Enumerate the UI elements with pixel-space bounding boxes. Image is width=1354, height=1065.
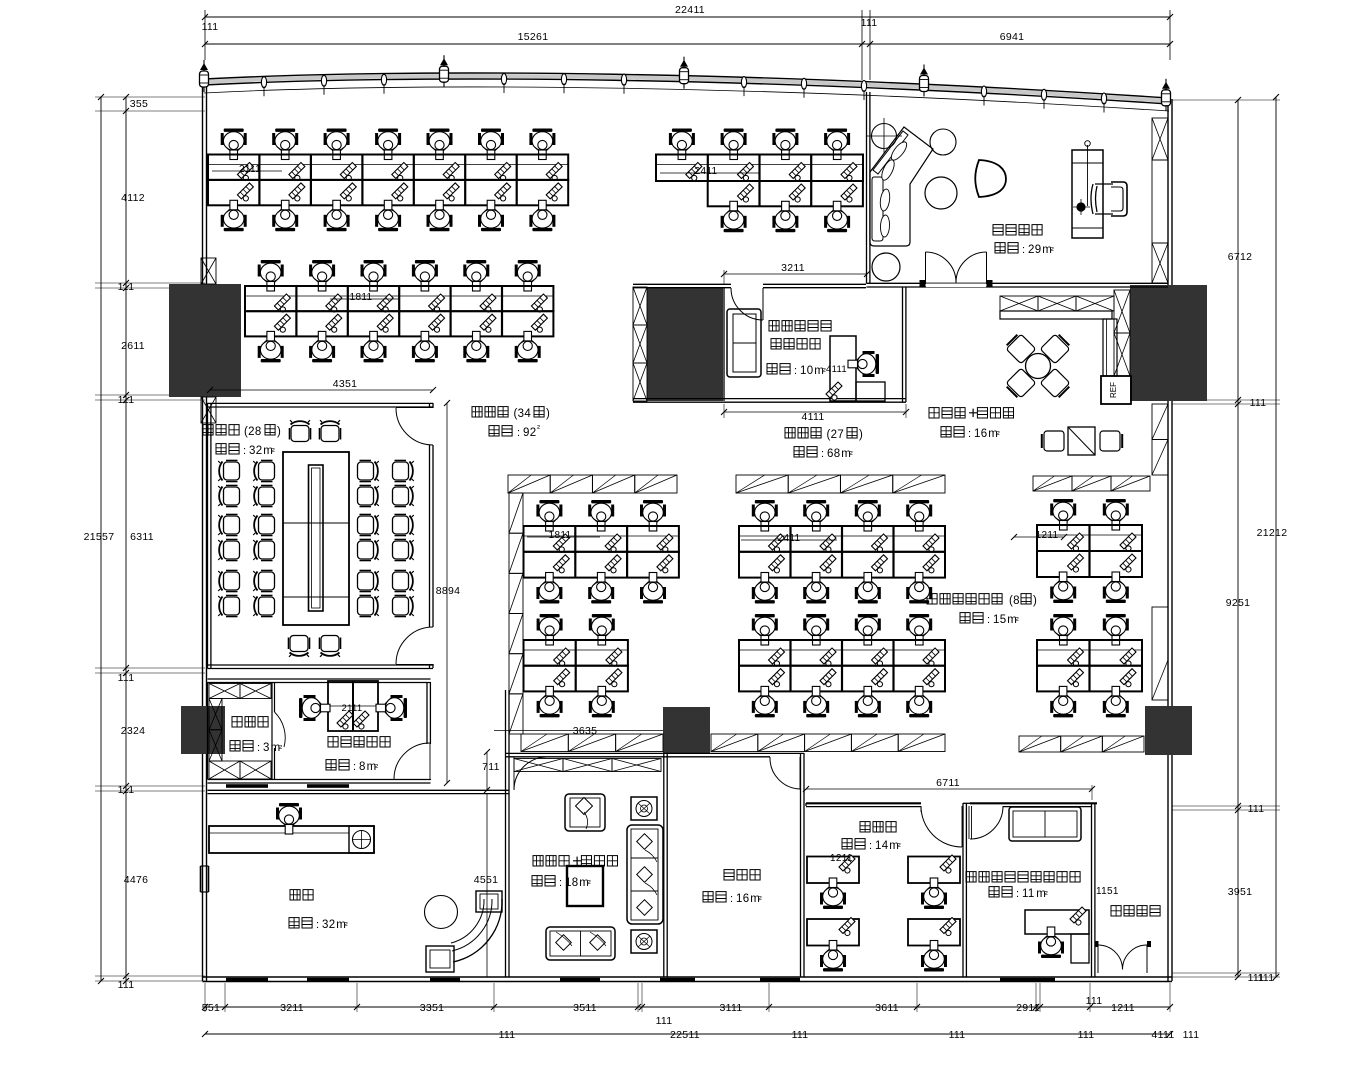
svg-text:²: ²	[1045, 889, 1048, 899]
svg-text:2324: 2324	[121, 725, 146, 737]
svg-text:111: 111	[118, 281, 135, 293]
svg-text::: :	[869, 840, 872, 852]
svg-text::: :	[1022, 244, 1025, 256]
svg-text:4112: 4112	[121, 192, 145, 204]
svg-text:111: 111	[949, 1029, 966, 1041]
svg-text:16: 16	[736, 893, 749, 905]
svg-text:11: 11	[1022, 888, 1035, 900]
svg-text:²: ²	[1051, 245, 1054, 255]
svg-text:²: ²	[850, 449, 853, 459]
svg-text:3211: 3211	[781, 262, 805, 274]
svg-text::: :	[257, 742, 260, 754]
svg-text:3951: 3951	[1228, 886, 1253, 898]
svg-text:22411: 22411	[675, 4, 705, 16]
svg-text:1811: 1811	[549, 530, 572, 541]
svg-text:3511: 3511	[573, 1002, 597, 1014]
svg-text:): )	[859, 429, 863, 441]
svg-text:²: ²	[588, 878, 591, 888]
svg-text:551: 551	[202, 1002, 220, 1014]
svg-text::: :	[987, 614, 990, 626]
svg-text:1151: 1151	[1096, 886, 1119, 897]
svg-text:3211: 3211	[280, 1002, 304, 1014]
svg-text:6941: 6941	[1000, 31, 1025, 43]
svg-text:6712: 6712	[1228, 251, 1253, 263]
svg-text::: :	[517, 427, 520, 439]
svg-text:16: 16	[974, 428, 987, 440]
svg-text:111: 111	[499, 1029, 516, 1041]
svg-text:18: 18	[565, 877, 578, 889]
svg-text:4351: 4351	[333, 378, 358, 390]
svg-text:²: ²	[272, 446, 275, 456]
svg-text:3611: 3611	[875, 1002, 899, 1014]
svg-text:14: 14	[875, 840, 889, 852]
svg-text:²: ²	[997, 429, 1000, 439]
svg-text:3351: 3351	[420, 1002, 445, 1014]
svg-text:2111: 2111	[342, 703, 363, 714]
svg-text::: :	[821, 448, 824, 460]
svg-text:21557: 21557	[84, 531, 115, 543]
svg-text:68: 68	[827, 448, 840, 460]
svg-text:2111: 2111	[239, 164, 261, 175]
svg-text:²: ²	[1016, 615, 1019, 625]
svg-text:2411: 2411	[778, 533, 801, 544]
svg-text:111: 111	[1183, 1029, 1200, 1041]
svg-text:(34: (34	[514, 408, 532, 420]
svg-text:²: ²	[537, 423, 540, 433]
svg-text:2611: 2611	[121, 340, 145, 352]
svg-text:): )	[546, 408, 550, 420]
svg-text:(27: (27	[827, 429, 845, 441]
svg-text::: :	[968, 428, 971, 440]
svg-text:111: 111	[861, 17, 878, 29]
svg-text::: :	[1016, 888, 1019, 900]
svg-text:4111: 4111	[1152, 1029, 1175, 1041]
svg-text:1211: 1211	[830, 853, 853, 864]
svg-text:8894: 8894	[436, 585, 461, 597]
svg-text:²: ²	[759, 894, 762, 904]
svg-text:): )	[1033, 595, 1037, 607]
svg-text:111: 111	[118, 672, 135, 684]
svg-text:111: 111	[118, 979, 135, 991]
svg-text:4476: 4476	[124, 874, 149, 886]
svg-text:3: 3	[263, 742, 270, 754]
svg-text:111: 111	[1086, 995, 1103, 1007]
svg-text:4111: 4111	[826, 364, 847, 375]
svg-text:111: 111	[1078, 1029, 1095, 1041]
svg-text:111: 111	[1258, 972, 1275, 984]
svg-text:²: ²	[898, 841, 901, 851]
svg-text:92: 92	[523, 427, 536, 439]
svg-text:355: 355	[130, 98, 148, 110]
svg-text:²: ²	[375, 762, 378, 772]
svg-text:711: 711	[482, 761, 500, 773]
svg-text::: :	[353, 761, 356, 773]
svg-text:111: 111	[656, 1015, 673, 1027]
svg-text::: :	[243, 445, 246, 457]
svg-text:3635: 3635	[573, 725, 598, 737]
svg-text:9251: 9251	[1226, 597, 1251, 609]
svg-text:3111: 3111	[720, 1002, 743, 1014]
svg-text:REF: REF	[1109, 382, 1118, 398]
svg-text:111: 111	[118, 394, 135, 406]
svg-text:4551: 4551	[474, 874, 499, 886]
svg-text:111: 111	[1248, 803, 1265, 815]
svg-text:15261: 15261	[518, 31, 549, 43]
svg-text:(8: (8	[1009, 595, 1020, 607]
svg-text:4111: 4111	[802, 411, 825, 423]
svg-text:8: 8	[359, 761, 366, 773]
svg-text:): )	[277, 426, 281, 438]
svg-text:111: 111	[202, 21, 219, 33]
svg-text:2411: 2411	[695, 166, 718, 177]
svg-text:32: 32	[249, 445, 262, 457]
svg-text::: :	[794, 365, 797, 377]
svg-text:10: 10	[800, 365, 813, 377]
svg-text:6311: 6311	[130, 531, 154, 543]
svg-text:2911: 2911	[1016, 1002, 1040, 1014]
svg-text:(28: (28	[244, 426, 262, 438]
svg-text:21212: 21212	[1257, 527, 1288, 539]
svg-text:1211: 1211	[1111, 1002, 1135, 1014]
svg-text:15: 15	[993, 614, 1006, 626]
svg-text:²: ²	[279, 743, 282, 753]
svg-text:111: 111	[792, 1029, 809, 1041]
svg-text::: :	[316, 919, 319, 931]
svg-text:²: ²	[345, 920, 348, 930]
svg-text:6711: 6711	[936, 777, 960, 789]
svg-text:111: 111	[1250, 397, 1267, 409]
svg-text:32: 32	[322, 919, 335, 931]
svg-text:111: 111	[118, 784, 135, 796]
svg-text::: :	[559, 877, 562, 889]
svg-text:22511: 22511	[670, 1029, 700, 1041]
svg-text:29: 29	[1028, 244, 1041, 256]
svg-text:1211: 1211	[1036, 530, 1059, 541]
svg-text::: :	[730, 893, 733, 905]
svg-text:1811: 1811	[350, 292, 373, 303]
